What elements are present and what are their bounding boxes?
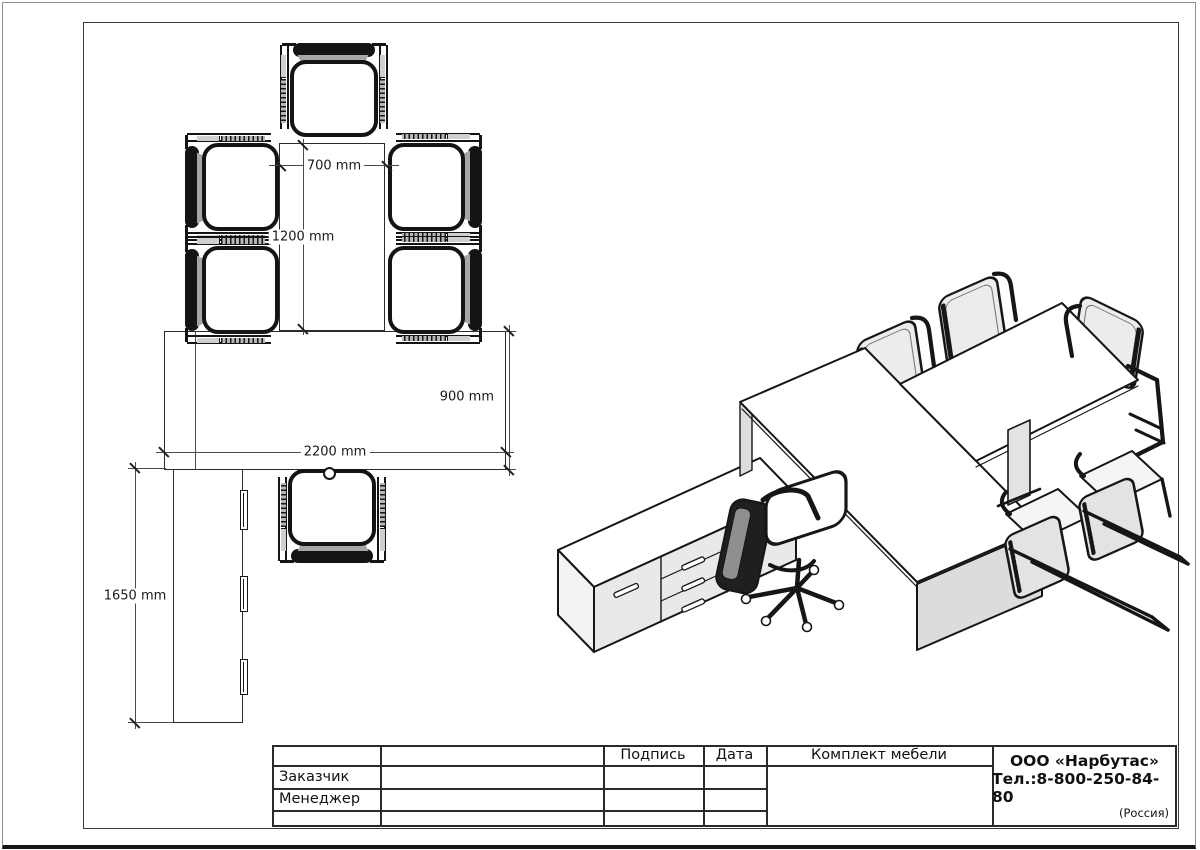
manager-label: Менеджер — [272, 788, 387, 810]
date-header: Дата — [703, 745, 766, 765]
product-title: Комплект мебели — [766, 745, 992, 765]
company-name: ООО «Нарбутас» — [1010, 752, 1159, 770]
drawing-sheet: 700 mm 1200 mm 900 mm 2200 mm — [0, 0, 1200, 850]
isometric-view — [0, 0, 1200, 850]
company-phone: Тел.:8-800-250-84-80 — [992, 770, 1177, 806]
company-cell: ООО «Нарбутас» Тел.:8-800-250-84-80 (Рос… — [992, 745, 1177, 827]
meeting-chair-near-right — [1076, 451, 1188, 564]
company-country: (Россия) — [1119, 806, 1177, 820]
customer-label: Заказчик — [272, 765, 387, 788]
signature-header: Подпись — [603, 745, 703, 765]
